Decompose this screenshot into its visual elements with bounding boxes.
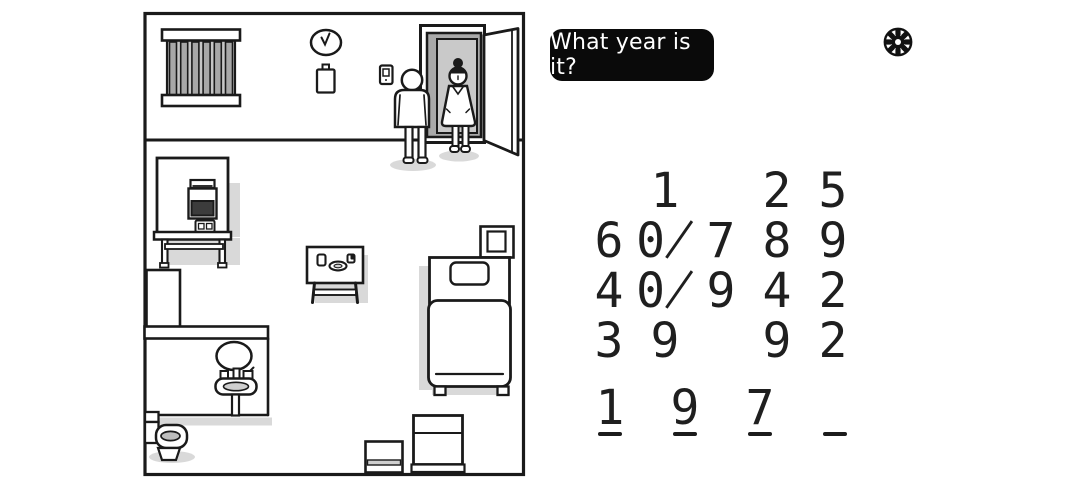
answer-digit: 9 xyxy=(671,387,700,429)
digit-key[interactable]: 8 xyxy=(749,216,805,266)
digit-key xyxy=(693,166,749,216)
digit-key[interactable]: 0̸ xyxy=(637,216,693,266)
nightstand[interactable] xyxy=(481,227,514,258)
game-screen: What year is it? 1 2 5 6 0̸ xyxy=(0,0,1080,498)
answer-slot: 1 xyxy=(577,384,643,436)
storage-box-small[interactable] xyxy=(366,442,403,473)
meal-table[interactable] xyxy=(307,247,368,303)
number-grid: 1 2 5 6 0̸ 7 8 9 4 0̸ 9 4 2 3 9 9 2 xyxy=(581,166,861,366)
answer-slot xyxy=(802,384,868,436)
digit-key[interactable]: 3 xyxy=(581,316,637,366)
digit-key[interactable]: 4 xyxy=(581,266,637,316)
room-scene xyxy=(0,0,1080,498)
light-switch[interactable] xyxy=(380,66,393,85)
digit-key[interactable]: 5 xyxy=(805,166,861,216)
digit-key[interactable]: 2 xyxy=(805,266,861,316)
answer-underline xyxy=(673,432,697,436)
wall-cabinet[interactable] xyxy=(147,270,181,328)
digit-key[interactable]: 9 xyxy=(805,216,861,266)
digit-key[interactable]: 4 xyxy=(749,266,805,316)
question-bubble: What year is it? xyxy=(550,29,714,81)
digit-key xyxy=(693,316,749,366)
digit-key[interactable]: 7 xyxy=(693,216,749,266)
pillow xyxy=(451,263,489,285)
digit-key xyxy=(581,166,637,216)
monitor-machine[interactable] xyxy=(157,158,240,237)
digit-key[interactable]: 1 xyxy=(637,166,693,216)
answer-slot: 7 xyxy=(727,384,793,436)
answer-digit: 7 xyxy=(746,387,775,429)
digit-key[interactable]: 9 xyxy=(693,266,749,316)
bed[interactable] xyxy=(419,258,511,396)
answer-underline xyxy=(748,432,772,436)
answer-underline xyxy=(598,432,622,436)
calendar[interactable] xyxy=(317,65,335,93)
wall-clock[interactable] xyxy=(311,30,341,55)
answer-underline xyxy=(823,432,847,436)
gear-icon[interactable] xyxy=(880,24,916,60)
machine-table[interactable] xyxy=(154,232,240,268)
digit-key[interactable]: 9 xyxy=(637,316,693,366)
barred-window[interactable] xyxy=(162,30,240,107)
digit-key[interactable]: 0̸ xyxy=(637,266,693,316)
answer-slot: 9 xyxy=(652,384,718,436)
digit-key[interactable]: 2 xyxy=(805,316,861,366)
mirror[interactable] xyxy=(217,342,252,370)
storage-box-large[interactable] xyxy=(412,416,465,473)
answer-digit: 1 xyxy=(596,387,625,429)
question-text: What year is it? xyxy=(550,30,714,80)
digit-key[interactable]: 6 xyxy=(581,216,637,266)
digit-key[interactable]: 9 xyxy=(749,316,805,366)
digit-key[interactable]: 2 xyxy=(749,166,805,216)
answer-row: 1 9 7 xyxy=(577,384,868,436)
